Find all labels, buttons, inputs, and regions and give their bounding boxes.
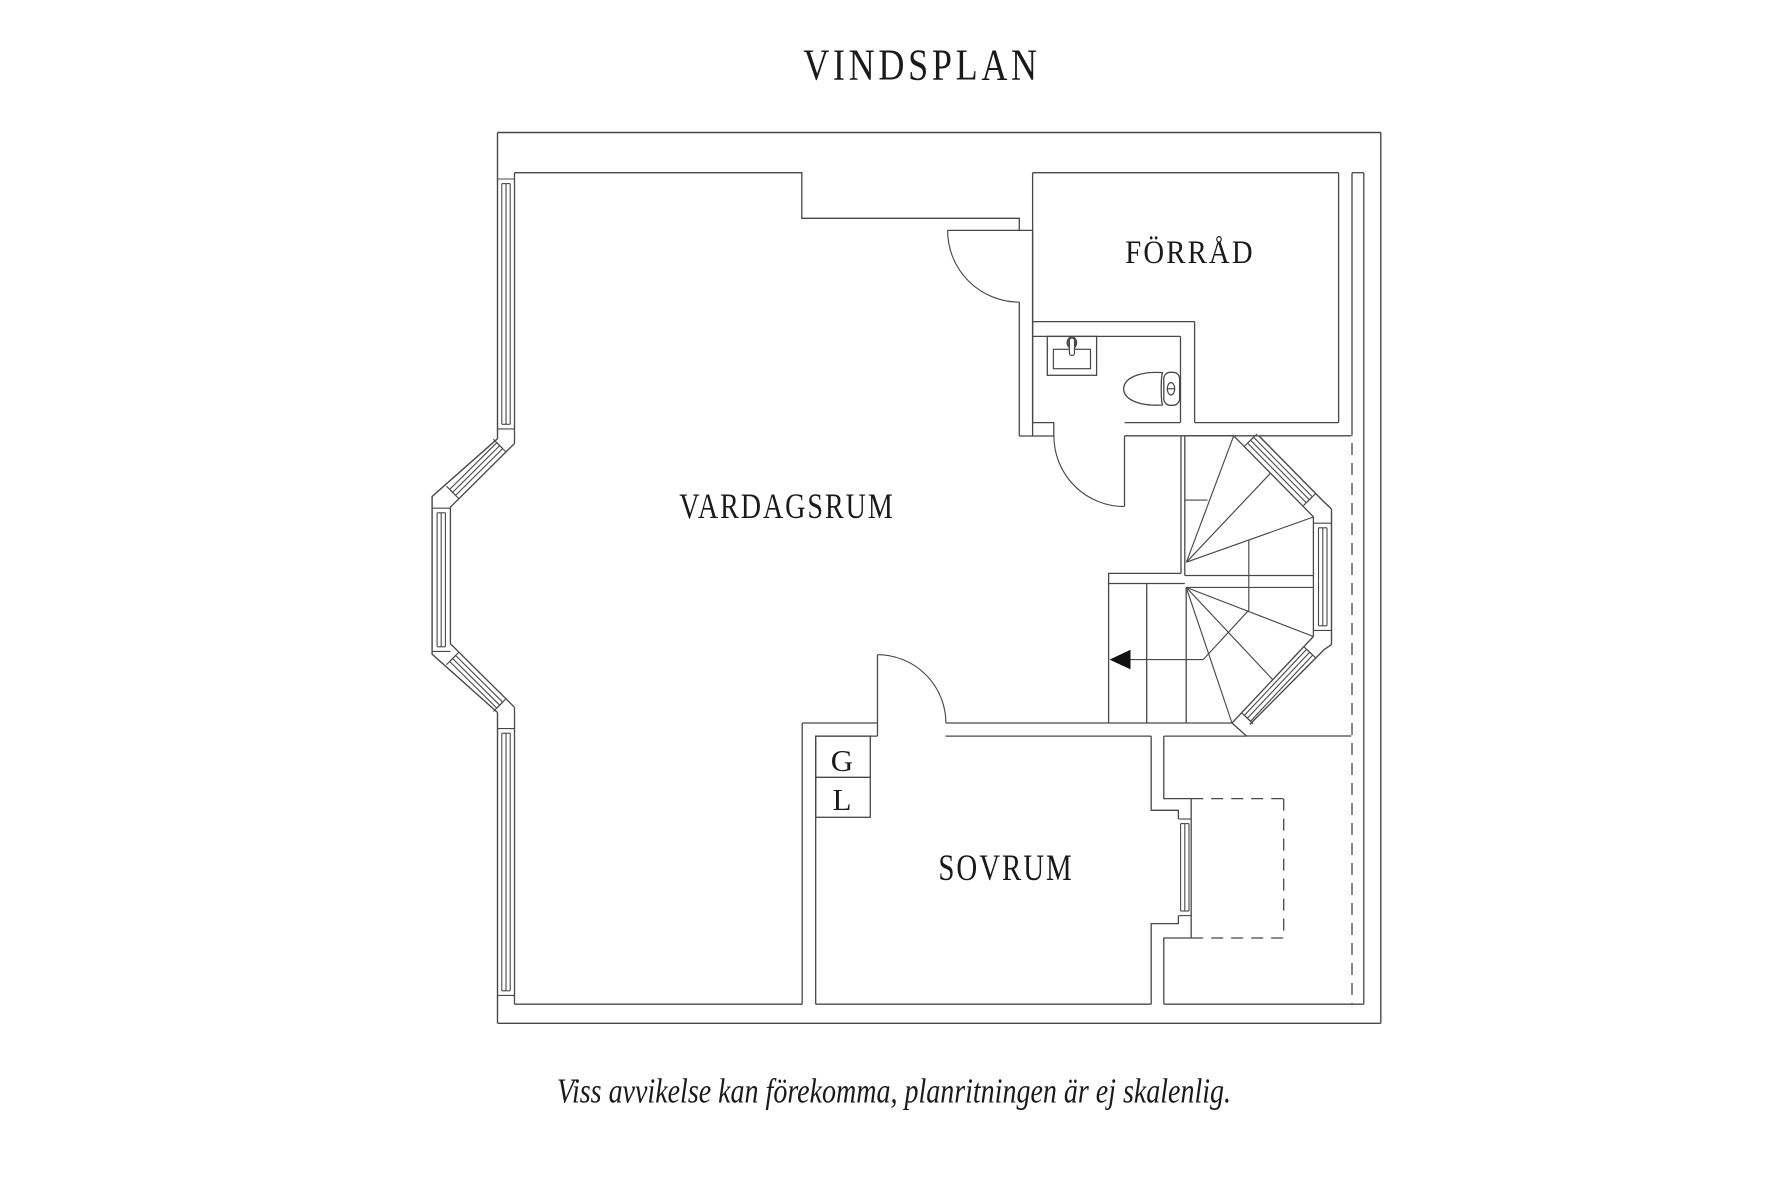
svg-text:VINDSPLAN: VINDSPLAN xyxy=(803,40,1041,89)
svg-text:FÖRRÅD: FÖRRÅD xyxy=(1125,233,1254,270)
svg-text:G: G xyxy=(831,743,853,778)
svg-text:Viss avvikelse kan förekomma,: Viss avvikelse kan förekomma, planritnin… xyxy=(557,1071,1231,1110)
svg-text:L: L xyxy=(833,782,852,817)
svg-text:SOVRUM: SOVRUM xyxy=(938,848,1073,889)
svg-text:VARDAGSRUM: VARDAGSRUM xyxy=(679,486,894,526)
